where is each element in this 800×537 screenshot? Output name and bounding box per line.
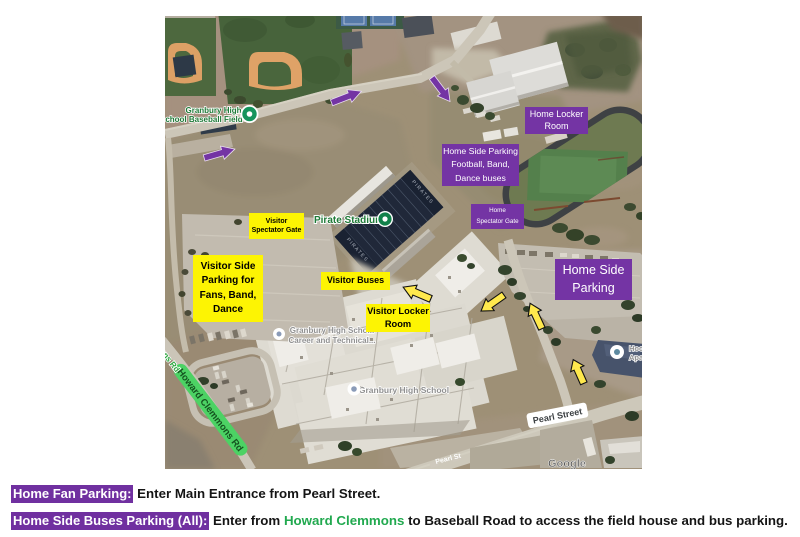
svg-text:Hoo: Hoo — [629, 344, 642, 353]
svg-text:Granbury High Scho...: Granbury High Scho... — [290, 326, 374, 335]
svg-text:Apa: Apa — [629, 353, 642, 362]
svg-text:Granbury High: Granbury High — [185, 106, 241, 115]
svg-text:Career and Technical...: Career and Technical... — [289, 336, 376, 345]
svg-text:Pirate Stadium: Pirate Stadium — [314, 215, 384, 226]
svg-text:Granbury High School: Granbury High School — [359, 385, 449, 395]
svg-text:chool Baseball Field: chool Baseball Field — [165, 115, 242, 124]
svg-text:Google: Google — [548, 458, 586, 469]
